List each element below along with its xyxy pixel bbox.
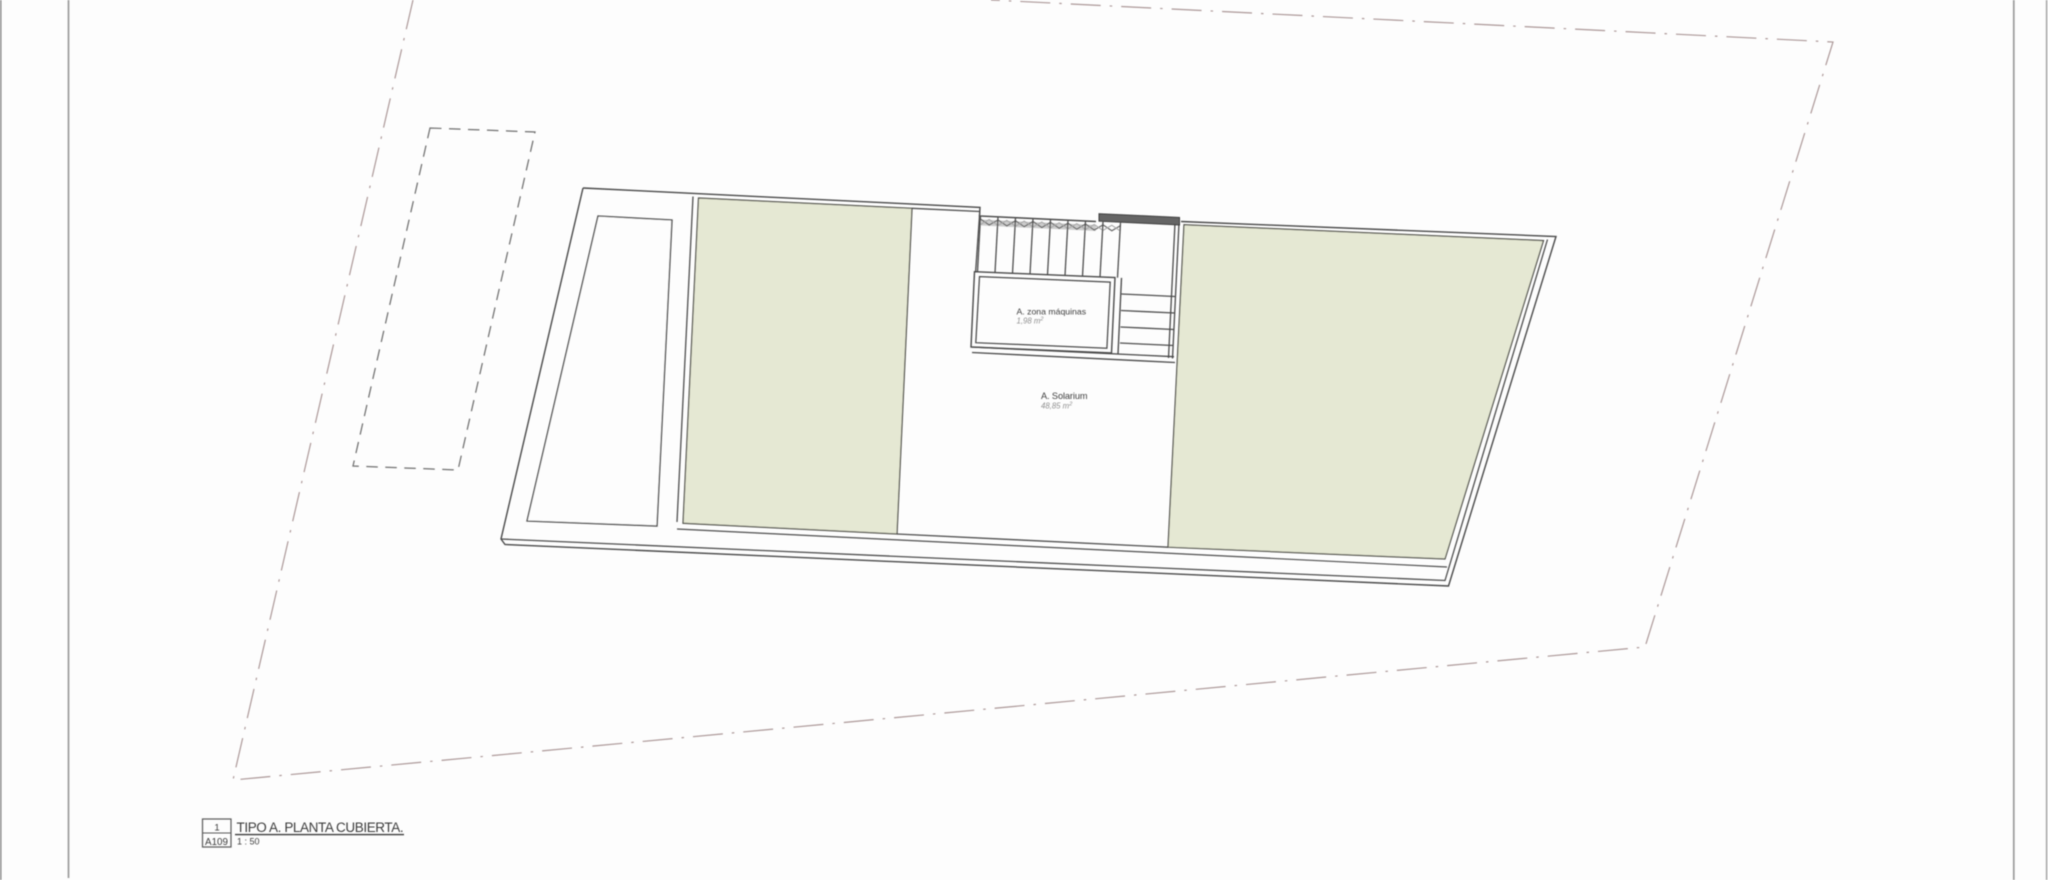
svg-text:1 : 50: 1 : 50 [237,837,260,847]
svg-text:48,85 m2: 48,85 m2 [1041,402,1073,411]
svg-text:A. zona máquinas: A. zona máquinas [1017,307,1087,317]
svg-text:1: 1 [214,823,219,834]
svg-text:A. Solarium: A. Solarium [1041,391,1088,401]
svg-text:TIPO A. PLANTA CUBIERTA.: TIPO A. PLANTA CUBIERTA. [237,820,404,835]
svg-text:1,98 m2: 1,98 m2 [1017,317,1045,326]
svg-text:A109: A109 [205,837,228,848]
